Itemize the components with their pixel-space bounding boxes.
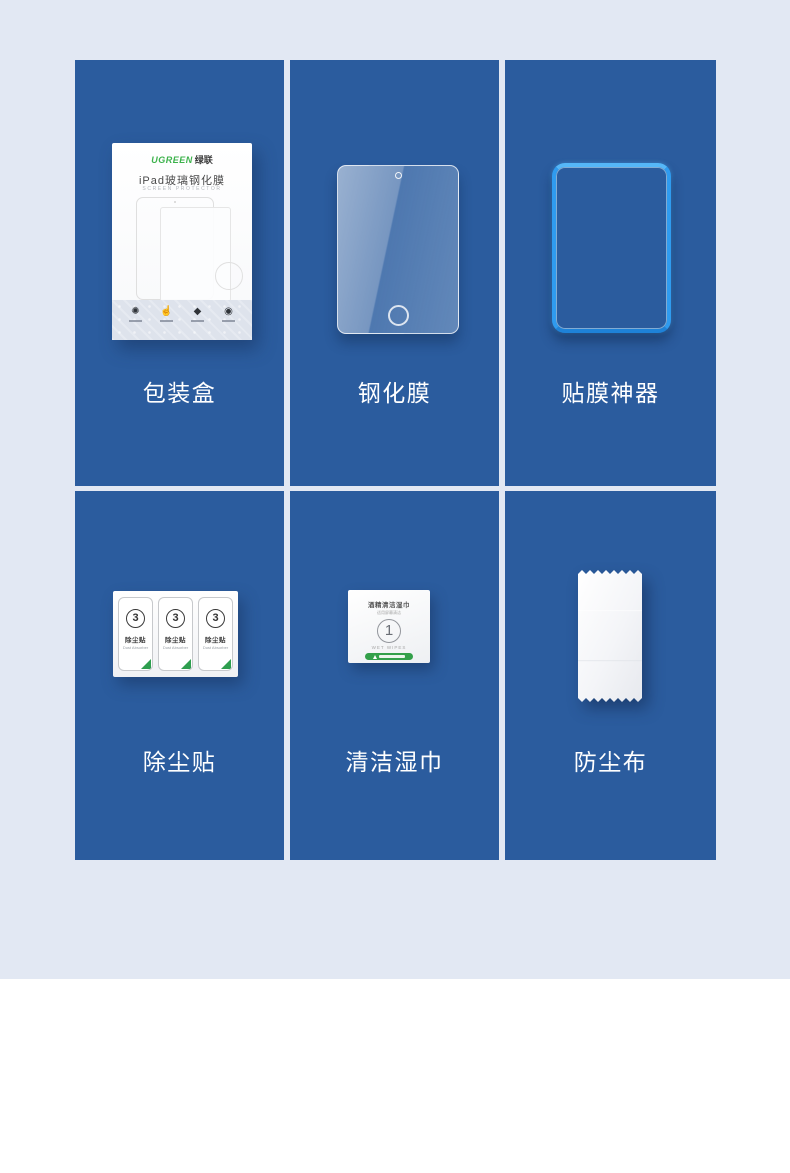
wipe-title: 酒精清洁湿巾 <box>348 590 430 609</box>
box-product-subtitle: SCREEN PROTECTOR <box>112 186 252 192</box>
brand-logo: UGREEN绿联 <box>112 155 252 165</box>
product-dust-stickers-photo: 3 除尘贴 Dust Absorber 3 除尘贴 Dust Absorber … <box>113 591 238 677</box>
dust-sticker-sublabel: Dust Absorber <box>159 645 192 650</box>
dust-sticker-number: 3 <box>126 609 145 628</box>
brand-logo-en: UGREEN <box>151 155 193 165</box>
item-label-dust-cloth: 防尘布 <box>505 749 716 777</box>
dust-sticker-sublabel: Dust Absorber <box>199 645 232 650</box>
product-dust-cloth-photo <box>578 570 642 702</box>
wipe-number: 1 <box>377 619 401 643</box>
dust-sticker-label: 除尘贴 <box>119 634 152 644</box>
gear-icon-glyph: ✺ <box>131 306 139 317</box>
green-corner-tab <box>141 659 151 669</box>
dust-sticker-label: 除尘贴 <box>159 634 192 644</box>
box-circle-detail-drawing <box>215 262 243 290</box>
dust-sticker: 3 除尘贴 Dust Absorber <box>158 597 193 671</box>
wipe-subtitle: 适用屏幕清洁 <box>348 610 430 616</box>
item-label-tempered-glass: 钢化膜 <box>290 380 499 408</box>
green-corner-tab <box>221 659 231 669</box>
wipe-caption: WET WIPES <box>348 645 430 650</box>
item-label-dust-stickers: 除尘贴 <box>75 749 284 777</box>
glass-home-button-cutout <box>388 305 409 326</box>
dust-sticker: 3 除尘贴 Dust Absorber <box>198 597 233 671</box>
diamond-icon: ◆ <box>188 307 208 322</box>
kit-tile-packaging-box: UGREEN绿联 iPad玻璃钢化膜 SCREEN PROTECTOR ✺ ☝ … <box>75 60 284 486</box>
product-packaging-box-photo: UGREEN绿联 iPad玻璃钢化膜 SCREEN PROTECTOR ✺ ☝ … <box>112 143 252 340</box>
product-applicator-frame-photo <box>552 163 671 333</box>
touch-icon: ☝ <box>157 307 177 322</box>
kit-tile-applicator-frame: 贴膜神器 <box>505 60 716 486</box>
green-corner-tab <box>181 659 191 669</box>
eye-icon-glyph: ◉ <box>224 306 233 317</box>
eye-icon: ◉ <box>219 307 239 322</box>
feature-caption-bar <box>191 320 204 322</box>
item-label-wet-wipe: 清洁湿巾 <box>290 749 499 777</box>
wipe-green-logo-bar <box>365 653 413 660</box>
product-tempered-glass-photo <box>337 165 459 334</box>
feature-caption-bar <box>222 320 235 322</box>
dust-sticker: 3 除尘贴 Dust Absorber <box>118 597 153 671</box>
gear-icon: ✺ <box>126 307 146 322</box>
kit-tile-dust-stickers: 3 除尘贴 Dust Absorber 3 除尘贴 Dust Absorber … <box>75 491 284 860</box>
kit-tile-dust-cloth: 防尘布 <box>505 491 716 860</box>
triangle-icon <box>373 655 377 659</box>
box-feature-icons: ✺ ☝ ◆ ◉ <box>112 300 252 322</box>
dust-sticker-sublabel: Dust Absorber <box>119 645 152 650</box>
diamond-icon-glyph: ◆ <box>194 306 202 317</box>
touch-icon-glyph: ☝ <box>160 306 172 317</box>
box-glass-outline-drawing <box>160 207 231 302</box>
dust-sticker-number: 3 <box>166 609 185 628</box>
product-wet-wipe-photo: 酒精清洁湿巾 适用屏幕清洁 1 WET WIPES <box>348 590 430 663</box>
brand-logo-cn: 绿联 <box>195 155 213 165</box>
kit-tile-wet-wipe: 酒精清洁湿巾 适用屏幕清洁 1 WET WIPES 清洁湿巾 <box>290 491 499 860</box>
box-pattern-band: ✺ ☝ ◆ ◉ <box>112 300 252 340</box>
item-label-applicator-frame: 贴膜神器 <box>505 380 716 408</box>
feature-caption-bar <box>129 320 142 322</box>
dust-sticker-number: 3 <box>206 609 225 628</box>
kit-tile-tempered-glass: 钢化膜 <box>290 60 499 486</box>
item-label-packaging-box: 包装盒 <box>75 380 284 408</box>
dust-sticker-label: 除尘贴 <box>199 634 232 644</box>
feature-caption-bar <box>160 320 173 322</box>
logo-bar-text-strip <box>379 655 405 658</box>
glass-camera-hole <box>395 172 402 179</box>
